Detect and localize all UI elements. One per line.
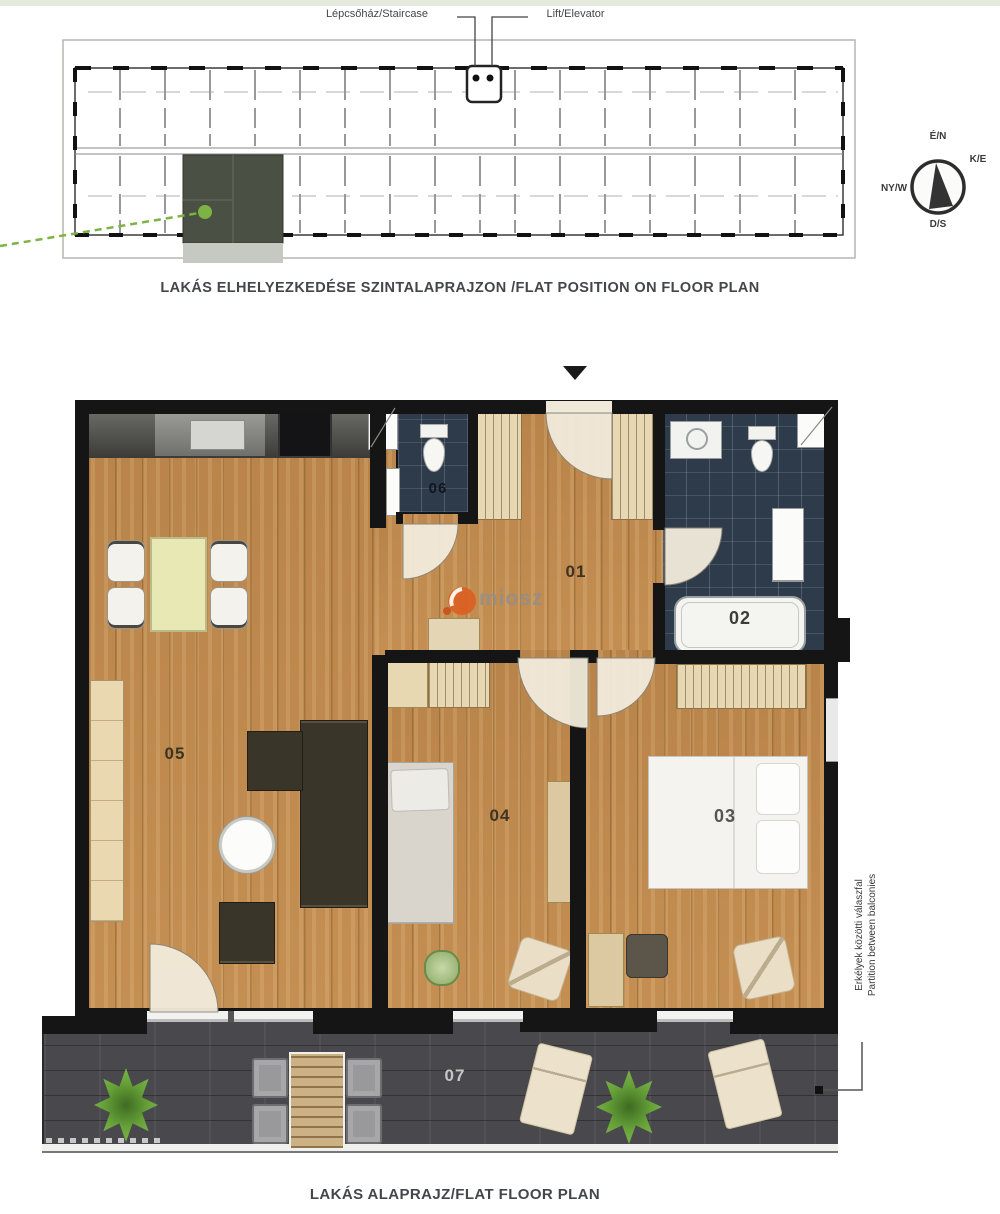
wall xyxy=(458,512,478,524)
pouf-chair xyxy=(732,935,796,1001)
parapet-wall xyxy=(520,1016,657,1032)
room-label-05: 05 xyxy=(145,744,205,764)
room-label-06: 06 xyxy=(408,480,468,497)
dining-chair xyxy=(210,587,248,629)
dining-table xyxy=(150,537,207,632)
terrace-plant xyxy=(94,1068,158,1142)
compass-icon xyxy=(912,161,964,213)
room-label-03: 03 xyxy=(695,806,755,827)
wall xyxy=(570,650,586,1012)
armchair xyxy=(219,902,275,964)
scale-ruler xyxy=(46,1138,166,1143)
wardrobe xyxy=(386,661,428,708)
window xyxy=(826,698,838,762)
compass-label-east: K/E xyxy=(958,154,998,165)
wall xyxy=(653,650,838,664)
compass-label-west: NY/W xyxy=(874,183,914,194)
kitchen-stove xyxy=(278,414,332,456)
top-strip xyxy=(0,0,1000,6)
wall xyxy=(653,583,665,660)
parapet-wall xyxy=(313,1018,453,1034)
compass-label-south: D/S xyxy=(918,219,958,230)
parapet-wall xyxy=(42,1016,147,1034)
wardrobe xyxy=(428,661,490,708)
wall-cabinet xyxy=(90,680,124,922)
wall xyxy=(385,650,520,663)
wall xyxy=(653,400,665,530)
terrace-edge xyxy=(42,1144,838,1151)
kitchen-sink xyxy=(190,420,245,450)
pillow xyxy=(756,763,800,815)
wall xyxy=(586,650,598,663)
sofa-chaise xyxy=(247,731,303,791)
outdoor-chair xyxy=(346,1104,382,1144)
elevator-label: Lift/Elevator xyxy=(528,8,623,20)
wall xyxy=(75,400,838,414)
dining-chair xyxy=(210,540,248,582)
wall xyxy=(396,512,403,524)
overview-caption: LAKÁS ELHELYEZKEDÉSE SZINTALAPRAJZON /FL… xyxy=(60,280,860,296)
desk xyxy=(588,933,624,1007)
room-label-07: 07 xyxy=(425,1066,485,1086)
outdoor-chair xyxy=(346,1058,382,1098)
wall xyxy=(468,408,478,524)
pillow xyxy=(756,820,800,874)
terrace-edge-line xyxy=(42,1151,838,1153)
watermark-text: miosz xyxy=(479,587,544,611)
elevator-icon xyxy=(467,66,501,102)
wall xyxy=(370,400,386,528)
wall xyxy=(836,618,850,662)
plan-caption: LAKÁS ALAPRAJZ/FLAT FLOOR PLAN xyxy=(40,1186,870,1203)
building-outline xyxy=(63,40,855,258)
dining-chair xyxy=(107,540,145,582)
room-passage-floor xyxy=(372,527,388,657)
flat-pointer-line xyxy=(0,205,212,246)
coffee-table xyxy=(219,817,275,873)
room-label-04: 04 xyxy=(470,806,530,826)
wardrobe xyxy=(611,413,658,520)
plant-vase xyxy=(424,950,460,986)
washbasin-bowl-icon xyxy=(686,428,708,450)
partition-note-line2: Partition between balconies xyxy=(866,830,879,1040)
pillow xyxy=(390,768,449,812)
compass-needle xyxy=(929,163,953,209)
compass-label-north: É/N xyxy=(918,131,958,142)
entry-door xyxy=(546,401,612,414)
room-label-01: 01 xyxy=(556,562,596,582)
toilet-tank xyxy=(420,424,448,438)
outdoor-table xyxy=(289,1052,345,1150)
sliding-door xyxy=(453,1011,523,1022)
room-label-02: 02 xyxy=(710,608,770,629)
highlighted-flat xyxy=(183,155,283,263)
dining-chair xyxy=(107,587,145,629)
wardrobe xyxy=(476,412,522,520)
wall xyxy=(75,400,89,1022)
wardrobe xyxy=(676,664,807,709)
sliding-door-mullion xyxy=(228,1011,234,1022)
toilet-tank xyxy=(748,426,776,440)
staircase-label: Lépcsőház/Staircase xyxy=(292,8,462,20)
floor-plan-sheet: Lépcsőház/Staircase Lift/Elevator É/N K/… xyxy=(0,0,1000,1214)
outdoor-chair xyxy=(252,1058,288,1098)
partition-note: Erkélyek közötti válaszfal Partition bet… xyxy=(853,830,881,1040)
wall xyxy=(372,655,388,1012)
parapet-wall xyxy=(730,1018,838,1034)
desk-chair xyxy=(626,934,668,978)
label-leader-lines xyxy=(457,17,528,66)
entrance-marker-icon xyxy=(563,366,587,380)
bathroom-cabinet xyxy=(772,508,804,582)
sofa xyxy=(300,720,368,908)
wc-cabinet xyxy=(386,468,400,516)
sliding-door xyxy=(657,1011,733,1022)
partition-note-line1: Erkélyek közötti válaszfal xyxy=(853,830,866,1040)
outdoor-chair xyxy=(252,1104,288,1144)
terrace-plant xyxy=(596,1070,662,1144)
